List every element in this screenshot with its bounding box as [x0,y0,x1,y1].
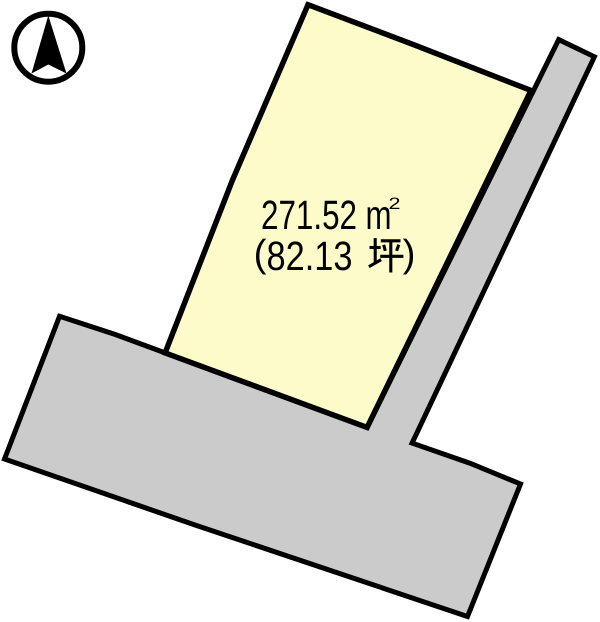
svg-text:(: ( [254,232,267,275]
svg-text:): ) [403,232,416,275]
svg-text:82.13: 82.13 [267,233,353,279]
svg-text:2: 2 [389,195,401,213]
svg-text:271.52: 271.52 [261,192,357,238]
